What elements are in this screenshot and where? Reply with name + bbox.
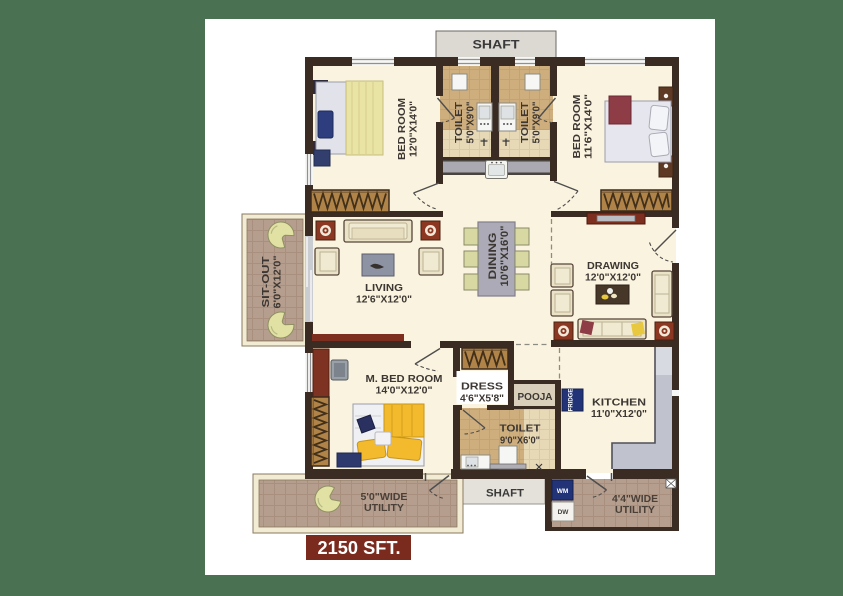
svg-text:TOILET5'0"X9'0": TOILET5'0"X9'0" <box>453 101 477 143</box>
svg-text:2150 SFT.: 2150 SFT. <box>318 537 401 558</box>
svg-text:FRIDGE: FRIDGE <box>569 389 575 412</box>
svg-text:DW: DW <box>558 509 570 516</box>
svg-text:TOILET5'0"X9'0": TOILET5'0"X9'0" <box>519 101 543 143</box>
svg-text:DRAWING12'0"X12'0": DRAWING12'0"X12'0" <box>585 260 641 284</box>
svg-text:DINING10'6"X16'0": DINING10'6"X16'0" <box>487 226 511 287</box>
svg-text:TOILET9'0"X6'0": TOILET9'0"X6'0" <box>500 424 542 447</box>
svg-text:BED ROOM12'0"X14'0": BED ROOM12'0"X14'0" <box>397 98 420 160</box>
svg-text:WM: WM <box>557 488 569 495</box>
svg-text:4'4"WIDEUTILITY: 4'4"WIDEUTILITY <box>612 494 658 516</box>
svg-text:BED ROOM11'6"X14'0": BED ROOM11'6"X14'0" <box>572 94 595 159</box>
svg-text:SIT-OUT6'0"X12'0": SIT-OUT6'0"X12'0" <box>260 255 284 308</box>
svg-text:DRESS4'6"X5'8": DRESS4'6"X5'8" <box>460 382 504 405</box>
svg-text:5'0"WIDEUTILITY: 5'0"WIDEUTILITY <box>361 492 408 514</box>
svg-text:M. BED ROOM14'0"X12'0": M. BED ROOM14'0"X12'0" <box>366 374 443 397</box>
svg-text:SHAFT: SHAFT <box>473 38 521 52</box>
svg-text:SHAFT: SHAFT <box>486 488 524 500</box>
svg-text:POOJA: POOJA <box>518 392 554 403</box>
svg-text:KITCHEN11'0"X12'0": KITCHEN11'0"X12'0" <box>591 398 647 421</box>
